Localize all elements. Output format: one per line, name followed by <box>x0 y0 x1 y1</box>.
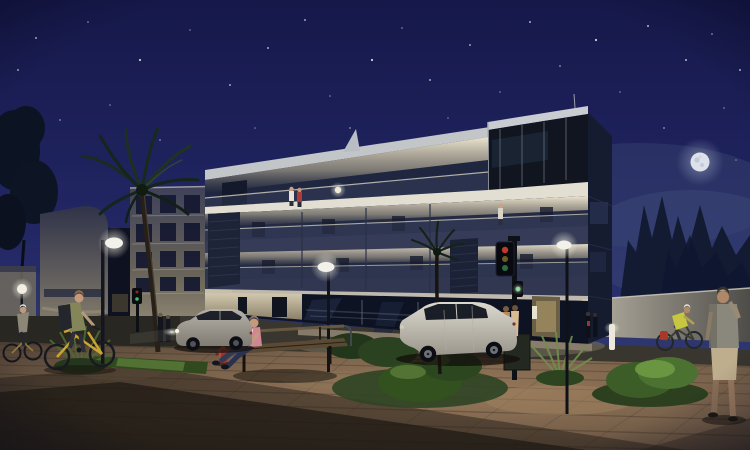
vignette <box>0 0 750 450</box>
scene-canvas <box>0 0 750 450</box>
night-render-image <box>0 0 750 450</box>
